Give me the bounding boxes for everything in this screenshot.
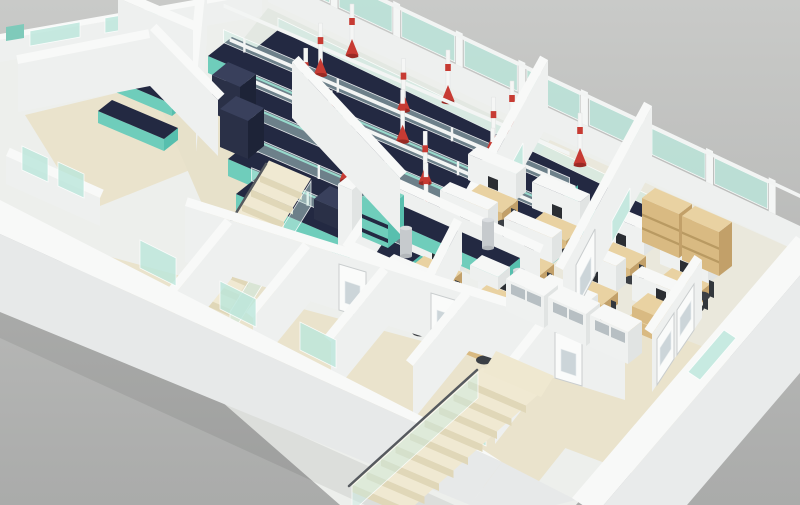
floorplan-scene-svg — [0, 0, 800, 505]
lab-floorplan-3d-render — [0, 0, 800, 505]
